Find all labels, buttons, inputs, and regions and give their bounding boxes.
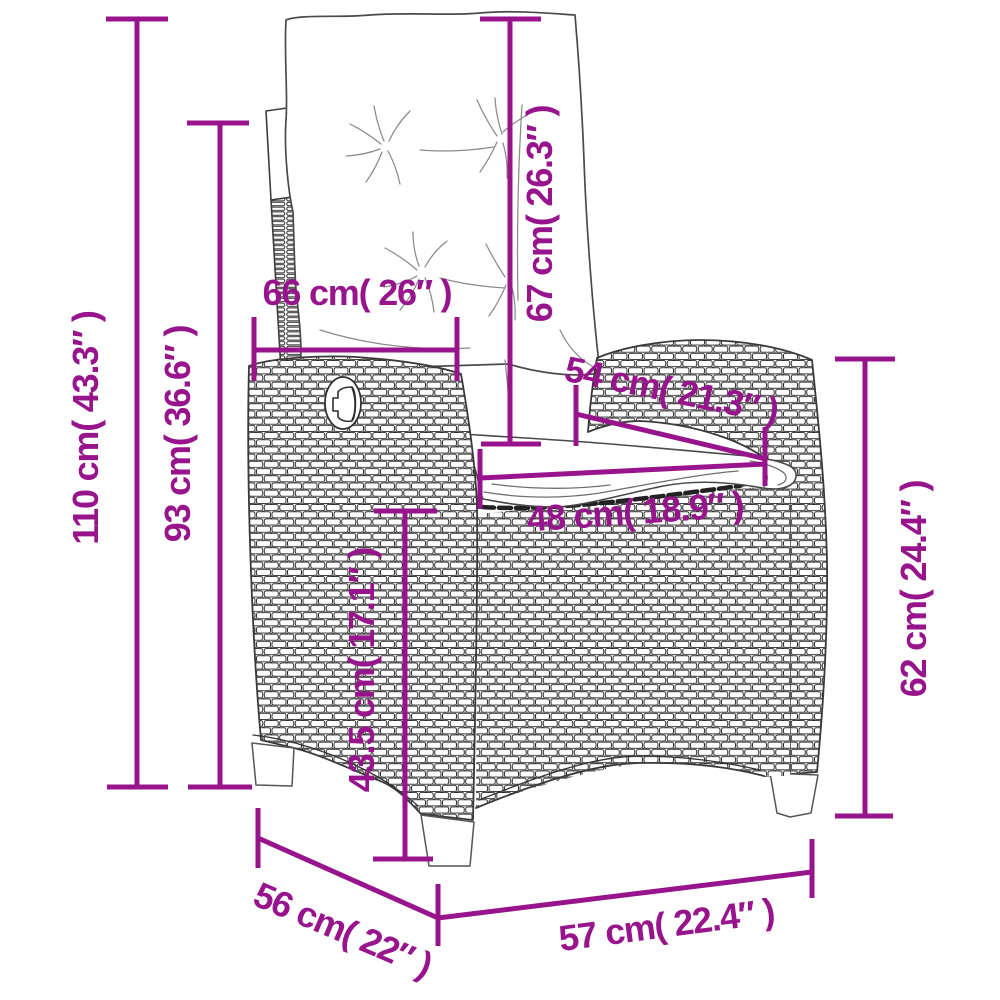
svg-text:66 cm( 26″ ): 66 cm( 26″ ): [263, 272, 452, 313]
svg-text:67 cm( 26.3″ ): 67 cm( 26.3″ ): [519, 106, 560, 323]
svg-text:93 cm( 36.6″ ): 93 cm( 36.6″ ): [157, 326, 198, 543]
svg-text:43.5 cm( 17.1″ ): 43.5 cm( 17.1″ ): [341, 548, 382, 792]
svg-text:62 cm( 24.4″ ): 62 cm( 24.4″ ): [893, 481, 934, 698]
svg-text:110 cm( 43.3″ ): 110 cm( 43.3″ ): [65, 311, 106, 545]
